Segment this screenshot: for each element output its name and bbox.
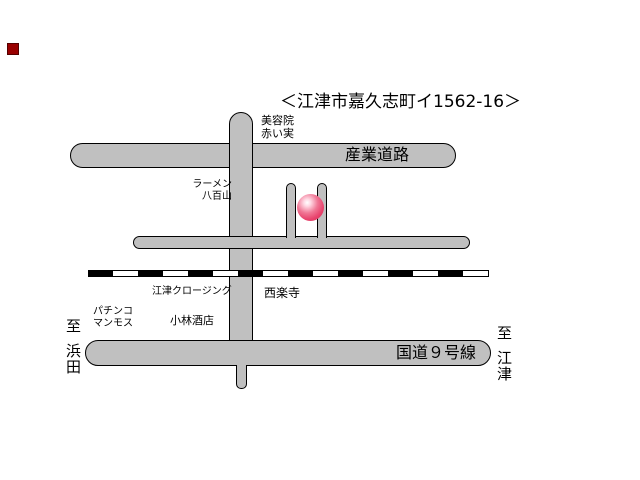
intersection-patch (230, 237, 252, 248)
label-ramen-shop: ラーメン 八百山 (188, 179, 232, 203)
intersection-patch (237, 361, 246, 366)
location-marker (297, 194, 324, 221)
direction-place: 浜田 (63, 343, 84, 375)
direction-to-hamada: 至 浜田 (63, 318, 84, 375)
intersection-patch (230, 144, 252, 167)
label-clothing-shop: 江津クロージング (152, 286, 232, 298)
direction-prefix: 至 (63, 318, 84, 334)
direction-place: 江津 (494, 350, 515, 382)
road-narrow-left (286, 183, 296, 238)
direction-to-gotsu: 至 江津 (494, 325, 515, 382)
direction-prefix: 至 (494, 325, 515, 341)
label-sake-shop: 小林酒店 (170, 315, 214, 328)
map-canvas: ＜江津市嘉久志町イ1562-16＞ 産業道路 国道９号線 美容院 赤い実 ラーメ… (0, 0, 640, 480)
road-middle-horizontal (133, 236, 470, 249)
intersection-patch (318, 237, 326, 248)
page-title: ＜江津市嘉久志町イ1562-16＞ (280, 92, 521, 112)
road-south-stub (236, 365, 247, 389)
label-temple: 西楽寺 (264, 286, 300, 300)
label-route9-road: 国道９号線 (396, 344, 476, 363)
railway-line (88, 270, 489, 277)
red-square-icon (7, 43, 19, 55)
label-sangyo-road: 産業道路 (345, 146, 409, 165)
label-pachinko: パチンコ マンモス (93, 306, 133, 330)
intersection-patch (287, 237, 295, 248)
label-beauty-salon: 美容院 赤い実 (261, 115, 294, 141)
